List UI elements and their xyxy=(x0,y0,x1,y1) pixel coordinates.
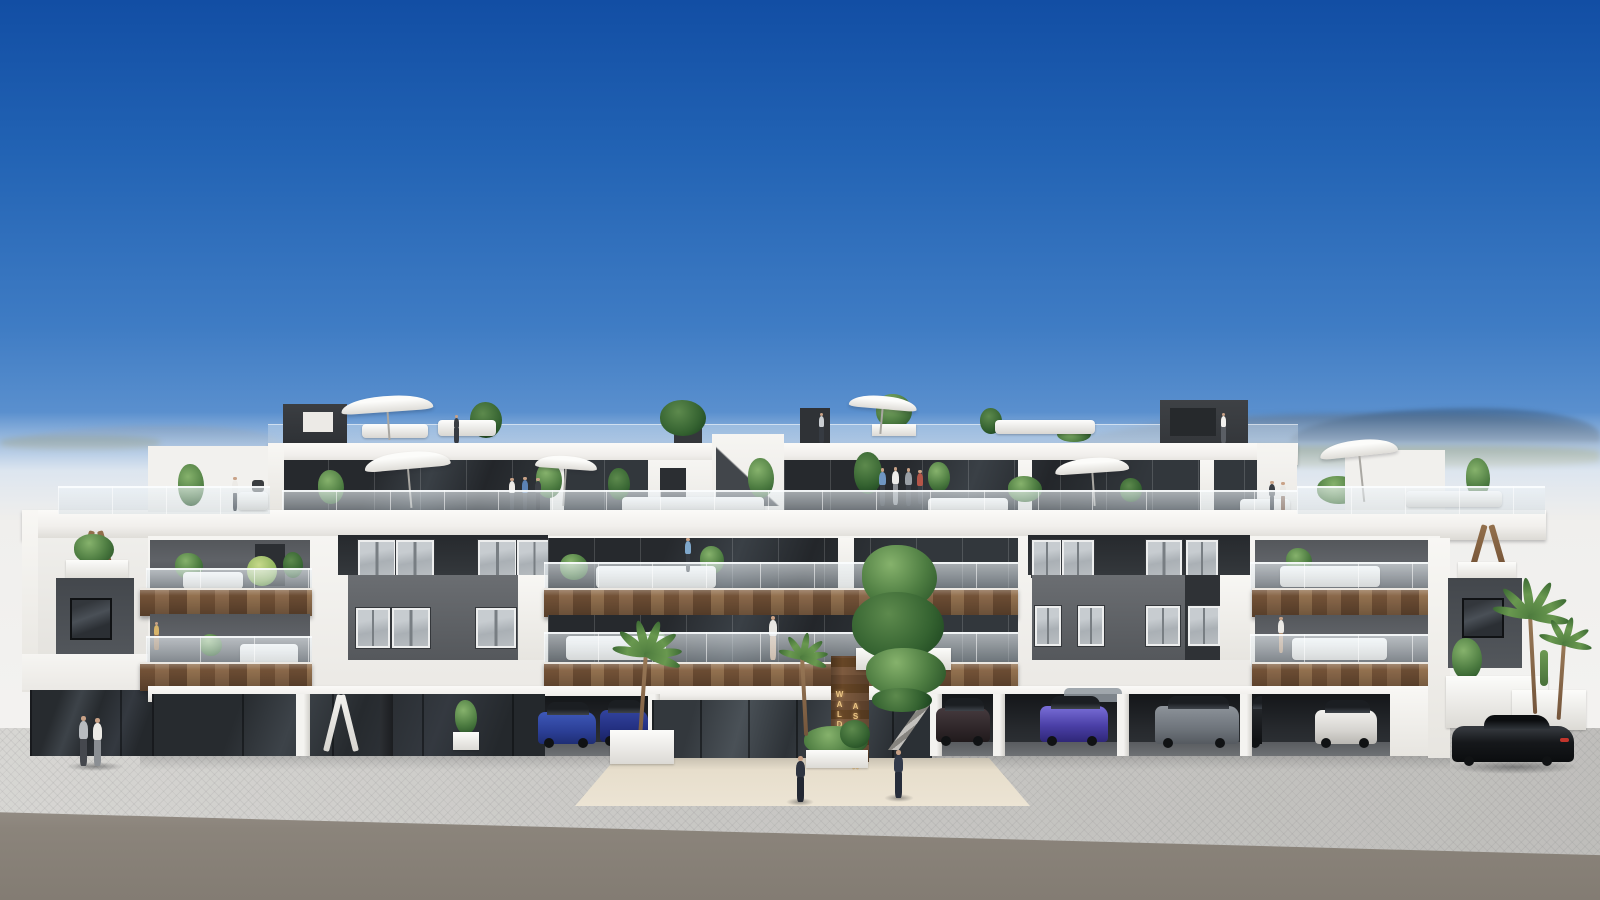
end-wall-pier xyxy=(1390,690,1428,756)
person xyxy=(795,756,806,802)
garage-floor xyxy=(942,742,1262,756)
timber-balcony-fascia xyxy=(544,588,1018,617)
car-white xyxy=(1315,710,1377,744)
window xyxy=(476,608,516,648)
entrance-shrubs xyxy=(840,720,870,748)
window xyxy=(1032,540,1062,577)
window xyxy=(1078,606,1104,646)
window xyxy=(1146,606,1180,646)
column xyxy=(380,694,393,756)
timber-balcony-fascia xyxy=(1252,588,1442,617)
parasol-pole xyxy=(879,409,883,434)
column xyxy=(1240,694,1252,756)
window xyxy=(478,540,517,577)
facade-pier xyxy=(1220,575,1250,660)
roof-terrace-chairs xyxy=(438,420,496,436)
roof-parasol xyxy=(846,393,917,437)
roof-stair-bulkhead xyxy=(800,408,830,444)
planter-box xyxy=(453,732,479,750)
roof-terrace-loungers xyxy=(995,420,1095,434)
car-blue xyxy=(538,712,596,744)
architectural-render-scene: WALDORF ASTORIA xyxy=(0,0,1600,900)
roof-bulkhead-panel xyxy=(303,412,333,432)
palm-planter xyxy=(610,730,674,764)
person xyxy=(1220,413,1227,443)
left-wing-glass-balustrade xyxy=(58,486,270,514)
window xyxy=(70,598,112,640)
car-black-coupe xyxy=(1452,726,1574,762)
window xyxy=(1186,540,1218,577)
window xyxy=(356,608,390,648)
roof-parasol xyxy=(341,393,436,443)
planter-box xyxy=(66,560,128,580)
window xyxy=(1146,540,1182,577)
car-grey-suv xyxy=(1155,706,1239,744)
person xyxy=(893,750,904,798)
right-wing-glass-balustrade xyxy=(1297,486,1545,514)
large-tree-canopy xyxy=(872,688,932,712)
car-taillight xyxy=(1560,738,1569,742)
roof-bulkhead-door xyxy=(1170,408,1216,436)
storefront-plant xyxy=(455,700,477,734)
parasol-pole xyxy=(387,412,391,440)
person xyxy=(92,718,103,766)
column xyxy=(1117,694,1129,756)
person xyxy=(78,716,89,766)
storefront-glazing xyxy=(30,690,152,756)
terrace-plant xyxy=(928,462,950,492)
person xyxy=(818,413,825,443)
palm-tree xyxy=(1520,616,1600,726)
car-purple-suv xyxy=(1040,706,1108,742)
window xyxy=(358,540,396,577)
palm-tree xyxy=(760,630,844,740)
far-left-lower-slab xyxy=(22,654,152,690)
person xyxy=(453,415,460,443)
window xyxy=(1035,606,1061,646)
window xyxy=(1062,540,1094,577)
roof-bonsai-tree xyxy=(660,400,706,436)
window xyxy=(392,608,430,648)
window xyxy=(396,540,434,577)
timber-balcony-fascia xyxy=(140,588,312,616)
column xyxy=(296,694,310,756)
column xyxy=(993,694,1005,756)
window xyxy=(1188,606,1220,646)
planter-box xyxy=(806,750,868,768)
car-dark xyxy=(936,708,990,742)
